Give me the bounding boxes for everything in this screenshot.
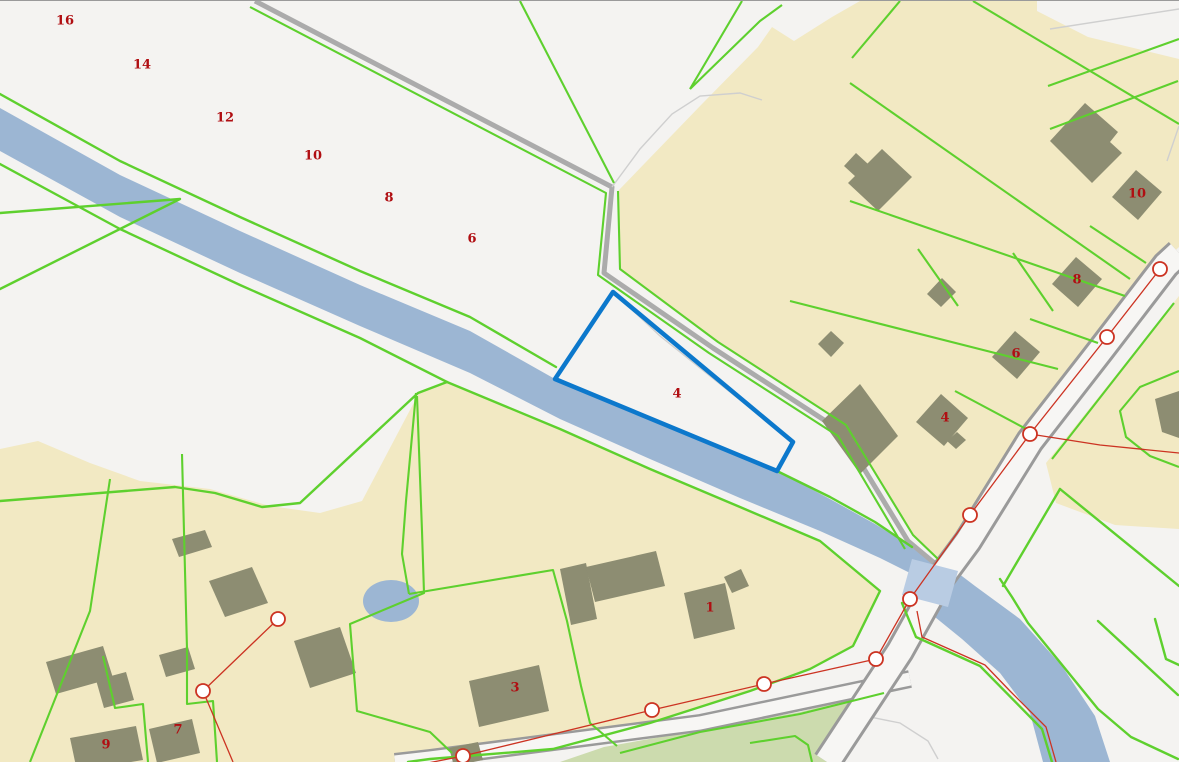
parcel-label: 8 (384, 191, 393, 206)
parcel-label: 4 (672, 387, 681, 402)
survey-marker (645, 703, 659, 717)
map-canvas[interactable]: 16141210861086441379 (0, 0, 1179, 762)
parcel-label: 10 (1128, 187, 1146, 202)
parcel-label: 14 (133, 58, 151, 73)
survey-marker (757, 677, 771, 691)
parcel-label: 3 (510, 681, 519, 696)
survey-marker (1153, 262, 1167, 276)
parcel-label: 8 (1072, 273, 1081, 288)
survey-marker (1100, 330, 1114, 344)
parcel-label: 7 (173, 723, 182, 738)
cadastral-map: 16141210861086441379 (0, 1, 1179, 762)
survey-marker (903, 592, 917, 606)
survey-marker (271, 612, 285, 626)
parcel-label: 16 (56, 14, 74, 29)
track-spur (860, 715, 938, 759)
parcel-label: 1 (705, 601, 714, 616)
parcel-label: 6 (467, 232, 476, 247)
survey-marker (196, 684, 210, 698)
parcel-label: 4 (940, 411, 949, 426)
parcel-label: 12 (216, 111, 234, 126)
parcel-label: 10 (304, 149, 322, 164)
survey-marker (456, 749, 470, 762)
survey-marker (1023, 427, 1037, 441)
parcel-label: 6 (1011, 347, 1020, 362)
survey-marker (963, 508, 977, 522)
parcel-label: 9 (101, 738, 110, 753)
survey-marker (869, 652, 883, 666)
